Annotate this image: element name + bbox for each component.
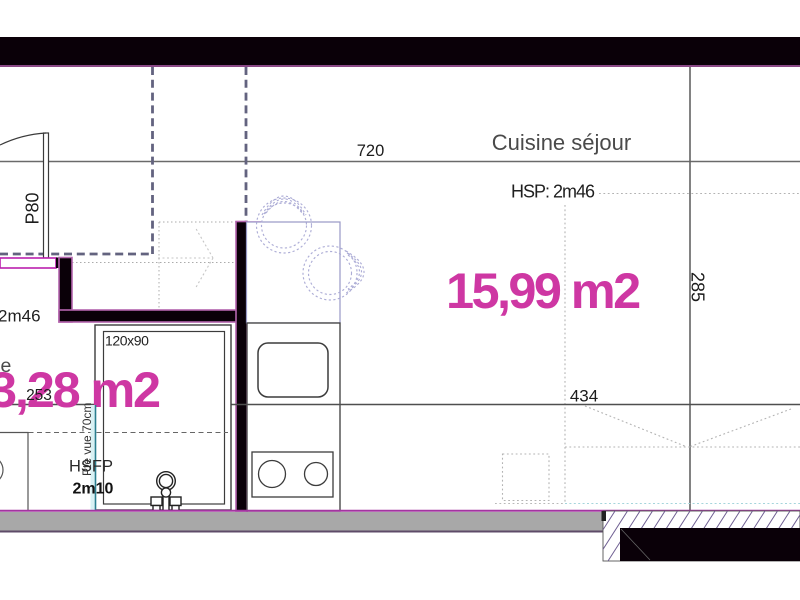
svg-text:2m46: 2m46 [0, 307, 41, 326]
svg-text:P80: P80 [23, 192, 43, 224]
svg-text:285: 285 [688, 272, 708, 302]
svg-text:2m10: 2m10 [73, 481, 114, 498]
svg-text:434: 434 [570, 387, 598, 406]
svg-text:720: 720 [357, 142, 385, 160]
svg-text:15,99 m2: 15,99 m2 [446, 262, 640, 319]
svg-text:HSFP: HSFP [69, 458, 113, 476]
svg-text:Cuisine séjour: Cuisine séjour [492, 130, 631, 155]
svg-text:253: 253 [26, 387, 52, 404]
svg-text:120x90: 120x90 [105, 333, 149, 349]
svg-text:HSP: 2m46: HSP: 2m46 [511, 182, 595, 202]
